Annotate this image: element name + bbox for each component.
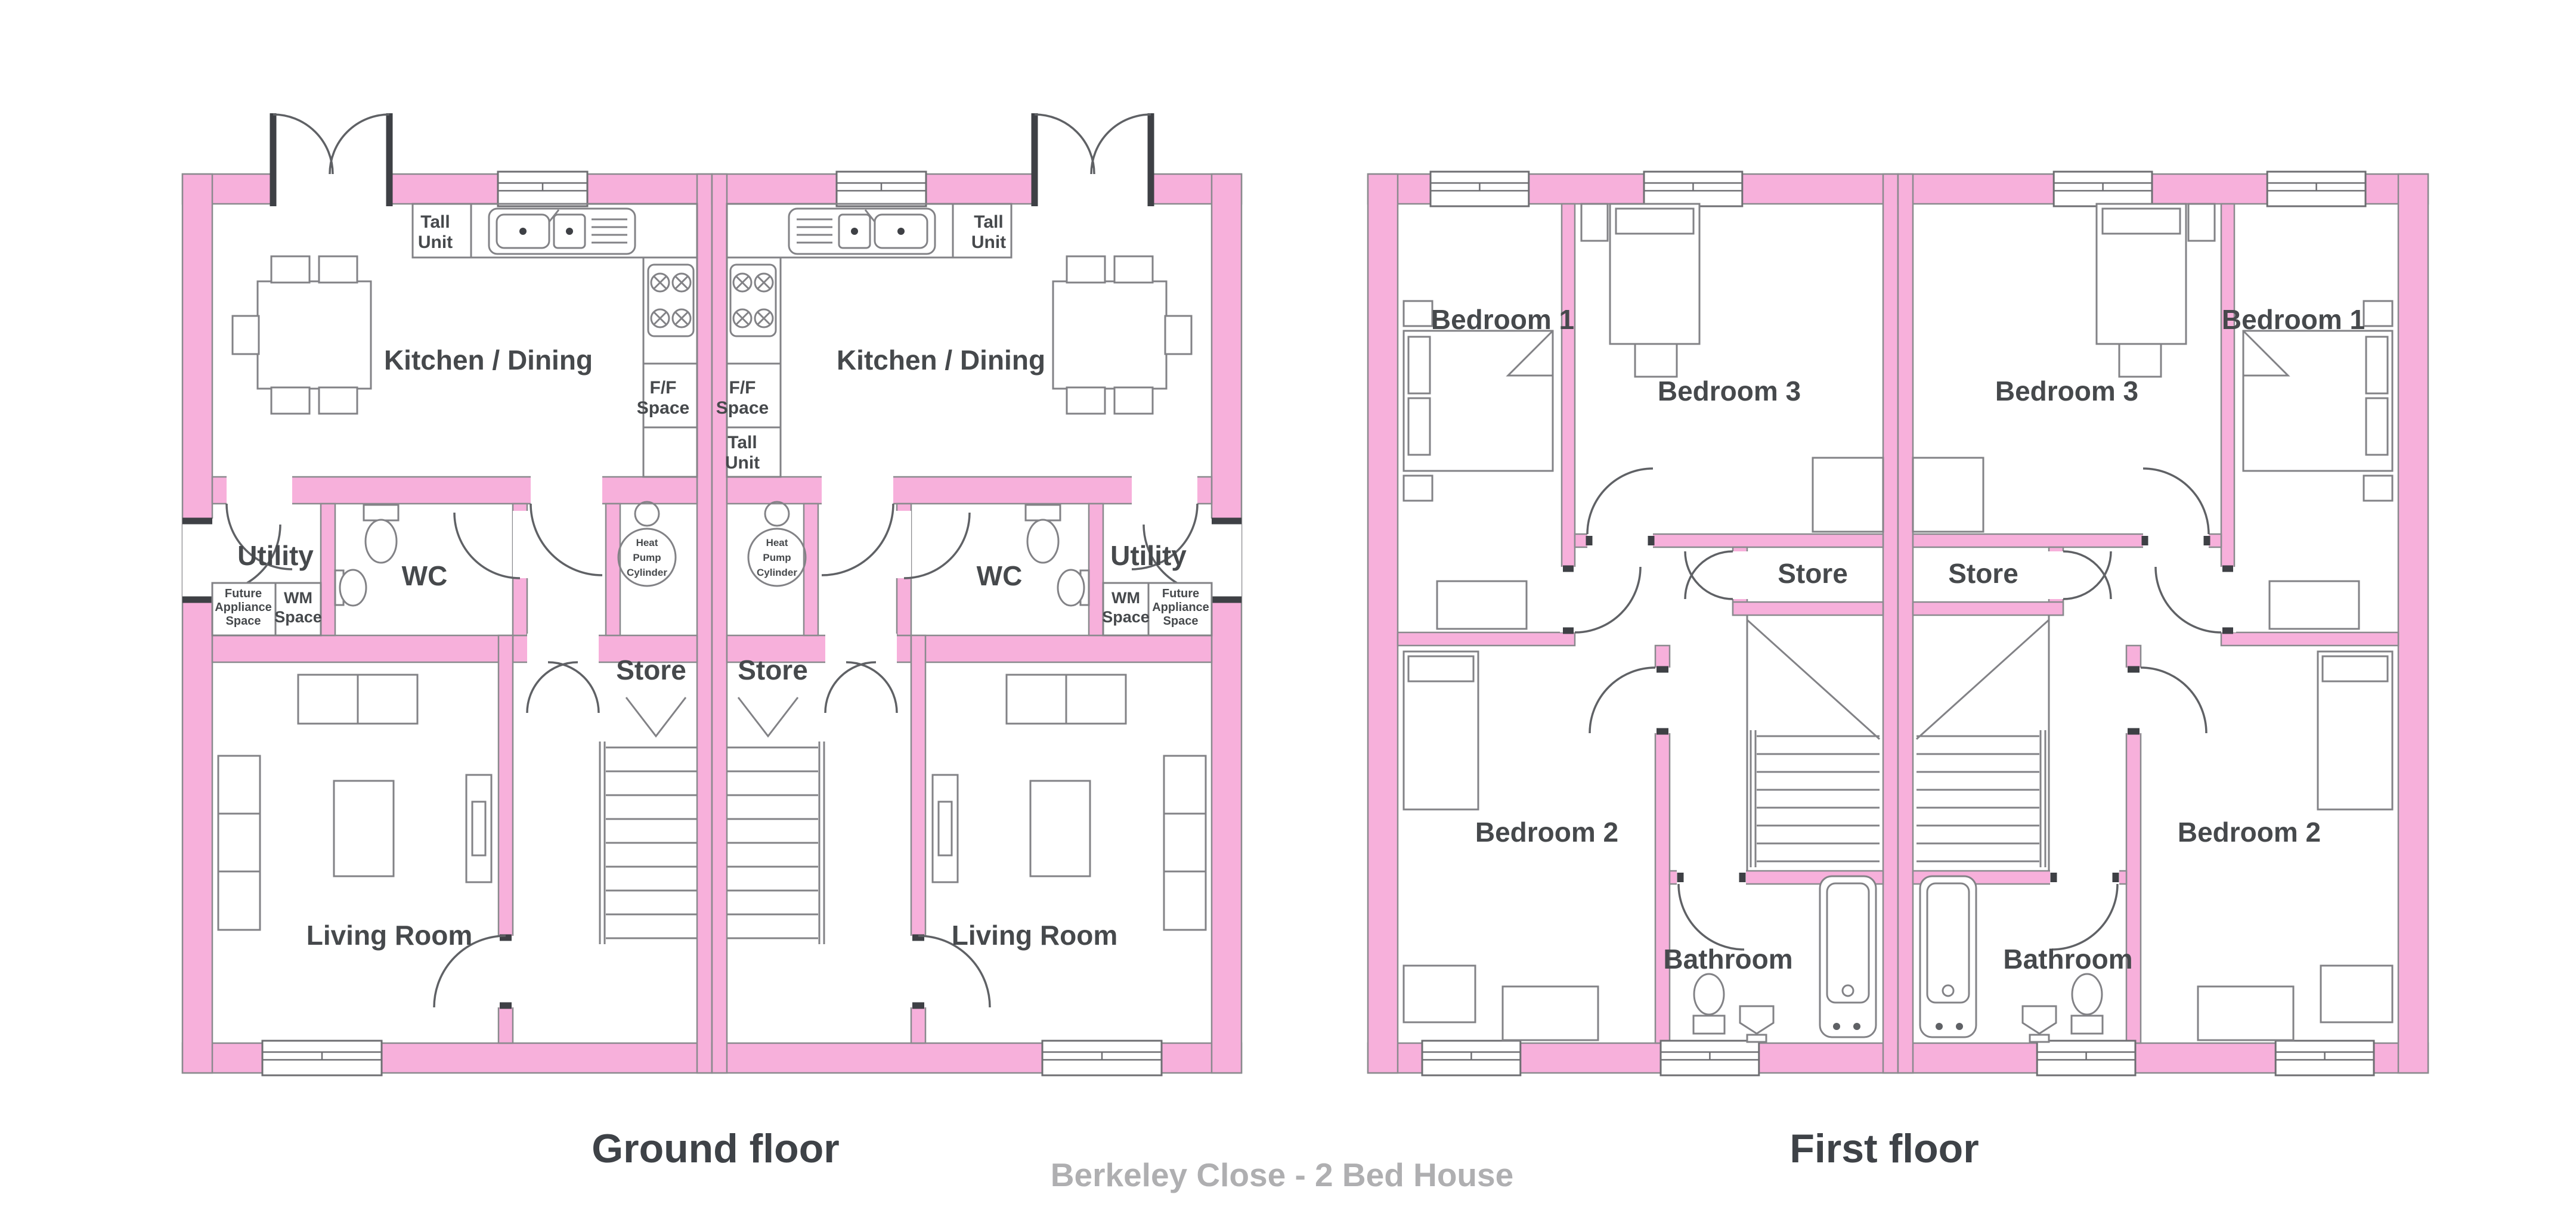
utility-label: Utility [1110, 540, 1187, 571]
utility-label: Utility [237, 540, 314, 571]
wc-label: WC [402, 560, 448, 591]
plan-footer-title: Berkeley Close - 2 Bed House [1051, 1156, 1513, 1193]
heat-pump-label: Pump [763, 552, 791, 563]
store-label: Store [1778, 558, 1848, 589]
first-floor-plan: Bedroom 1 Bedroom 3 Store Bedroom 2 Bath… [1368, 172, 2428, 1075]
bathroom-label: Bathroom [2003, 944, 2132, 975]
future-appliance-label: Appliance [215, 601, 272, 614]
ff-space-label: Space [637, 398, 689, 418]
ff-space-label: F/F [729, 378, 756, 398]
future-appliance-label: Future [225, 587, 262, 600]
ff-space-label: Space [716, 398, 769, 418]
bedroom2-label: Bedroom 2 [1475, 817, 1618, 848]
store-label: Store [616, 654, 686, 685]
tall-unit-label: Tall [727, 433, 757, 452]
wc-label: WC [977, 560, 1023, 591]
tall-unit-label: Unit [971, 232, 1006, 252]
kitchen-dining-label: Kitchen / Dining [384, 345, 593, 376]
bedroom1-label: Bedroom 1 [2222, 304, 2365, 335]
store-label: Store [1948, 558, 2018, 589]
ground-floor-title: Ground floor [592, 1126, 839, 1171]
heat-pump-label: Cylinder [757, 567, 797, 578]
living-room-label: Living Room [952, 920, 1118, 951]
wm-space-label: Space [274, 608, 322, 626]
floorplan-canvas: Kitchen / Dining Tall Unit F/F Space Uti… [0, 0, 2576, 1213]
bedroom2-label: Bedroom 2 [2178, 817, 2321, 848]
heat-pump-label: Pump [633, 552, 661, 563]
kitchen-dining-label: Kitchen / Dining [837, 345, 1045, 376]
future-appliance-label: Appliance [1152, 601, 1209, 614]
heat-pump-label: Heat [766, 537, 788, 548]
heat-pump-label: Cylinder [627, 567, 667, 578]
bedroom1-label: Bedroom 1 [1431, 304, 1574, 335]
first-floor-title: First floor [1789, 1126, 1979, 1171]
wm-space-label: Space [1102, 608, 1150, 626]
living-room-label: Living Room [306, 920, 473, 951]
future-appliance-label: Space [226, 615, 261, 628]
wm-space-label: WM [284, 589, 312, 607]
wm-space-label: WM [1111, 589, 1140, 607]
heat-pump-label: Heat [636, 537, 658, 548]
ground-floor-plan: Kitchen / Dining Tall Unit F/F Space Uti… [182, 113, 1241, 1075]
bedroom3-label: Bedroom 3 [1995, 376, 2138, 407]
store-label: Store [738, 654, 808, 685]
bedroom3-label: Bedroom 3 [1658, 376, 1801, 407]
ff-space-label: F/F [650, 378, 677, 398]
future-appliance-label: Future [1162, 587, 1199, 600]
tall-unit-label: Tall [420, 212, 450, 232]
tall-unit-label: Unit [725, 453, 760, 473]
tall-unit-label: Unit [418, 232, 453, 252]
tall-unit-label: Tall [974, 212, 1003, 232]
future-appliance-label: Space [1163, 615, 1199, 628]
bathroom-label: Bathroom [1663, 944, 1792, 975]
